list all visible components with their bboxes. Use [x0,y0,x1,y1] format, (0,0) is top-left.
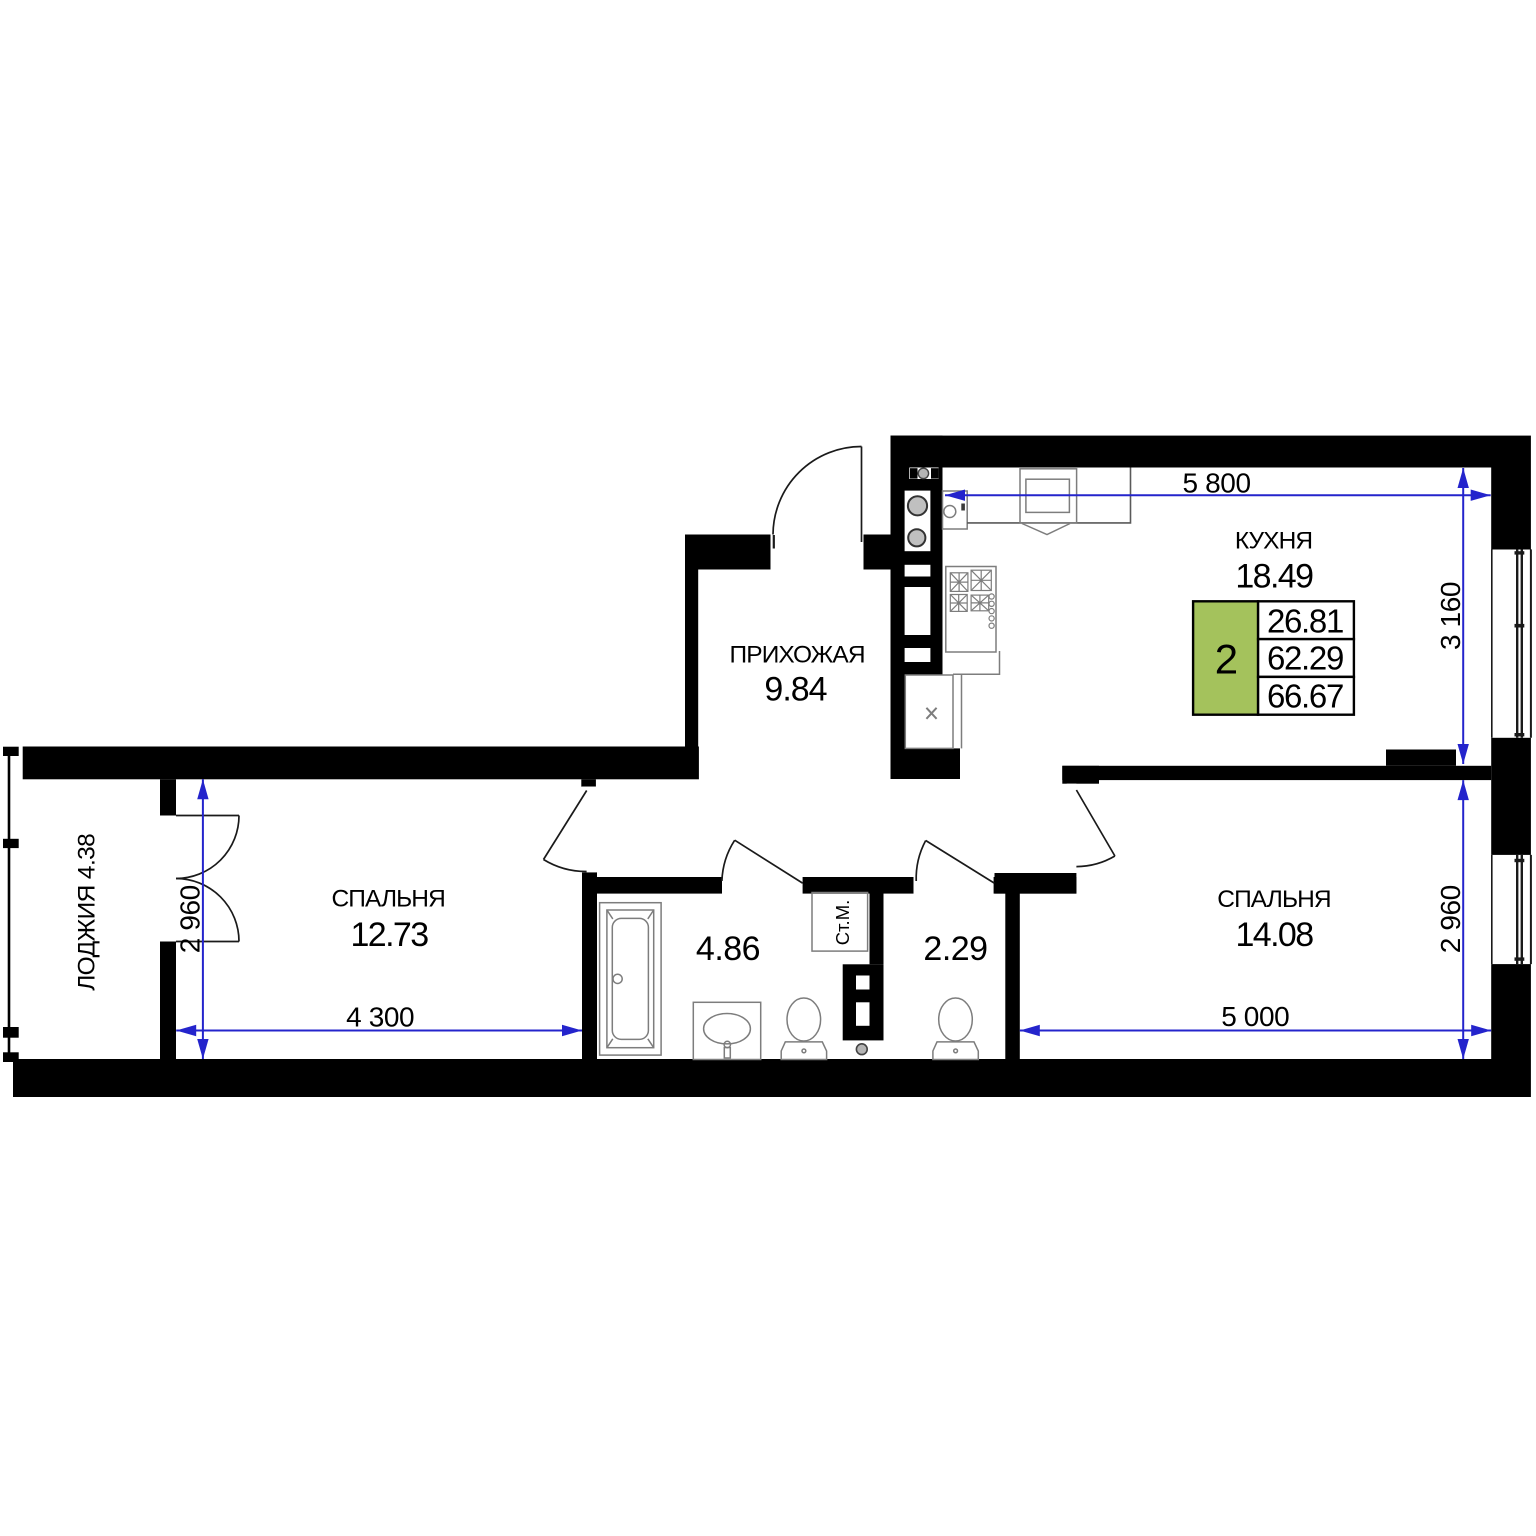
svg-text:9.84: 9.84 [764,671,826,709]
svg-text:18.49: 18.49 [1235,558,1313,596]
svg-text:СПАЛЬНЯ: СПАЛЬНЯ [1217,886,1330,913]
svg-text:2: 2 [1215,635,1238,682]
svg-text:5 800: 5 800 [1183,467,1251,498]
svg-text:3 160: 3 160 [1435,582,1466,650]
svg-text:Ст.М.: Ст.М. [832,900,853,945]
svg-text:4 300: 4 300 [346,1002,414,1033]
svg-text:ПРИХОЖАЯ: ПРИХОЖАЯ [730,642,865,669]
svg-text:5 000: 5 000 [1221,1001,1289,1032]
svg-text:ЛОДЖИЯ 4.38: ЛОДЖИЯ 4.38 [73,834,100,991]
svg-text:4.86: 4.86 [696,930,760,968]
svg-text:14.08: 14.08 [1235,916,1313,954]
svg-text:СПАЛЬНЯ: СПАЛЬНЯ [331,885,444,912]
svg-text:26.81: 26.81 [1267,602,1343,639]
svg-text:66.67: 66.67 [1267,678,1343,715]
svg-text:2 960: 2 960 [175,885,206,953]
svg-text:62.29: 62.29 [1267,640,1343,677]
svg-text:КУХНЯ: КУХНЯ [1235,528,1312,555]
svg-text:2.29: 2.29 [923,930,987,968]
svg-text:12.73: 12.73 [350,916,428,954]
svg-text:2 960: 2 960 [1435,885,1466,953]
